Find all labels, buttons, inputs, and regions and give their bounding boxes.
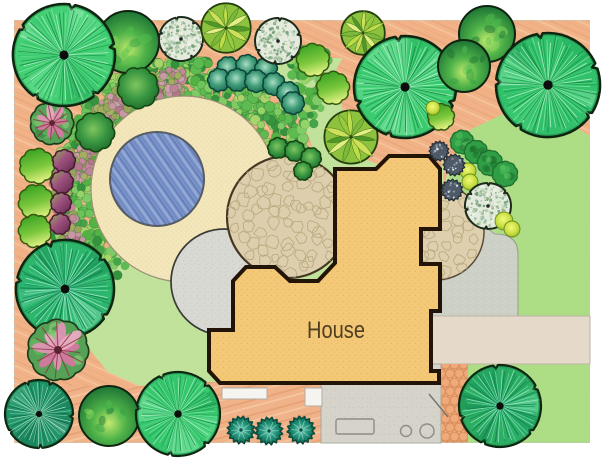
- svg-text:House: House: [307, 317, 365, 344]
